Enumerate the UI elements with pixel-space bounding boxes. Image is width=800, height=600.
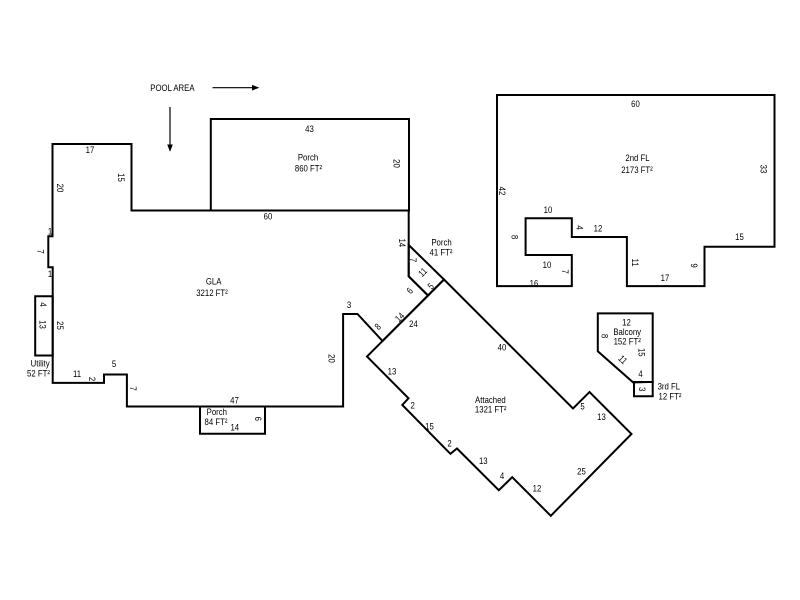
svg-text:8: 8 <box>599 334 610 338</box>
svg-text:24: 24 <box>409 318 418 329</box>
svg-text:4: 4 <box>638 368 642 379</box>
svg-text:13: 13 <box>37 320 48 329</box>
svg-text:POOL AREA: POOL AREA <box>150 82 194 93</box>
svg-text:860 FT²: 860 FT² <box>295 163 322 174</box>
svg-text:25: 25 <box>577 466 586 477</box>
svg-text:9: 9 <box>689 263 700 267</box>
svg-text:60: 60 <box>631 98 640 109</box>
svg-text:7: 7 <box>128 386 139 390</box>
svg-text:84 FT²: 84 FT² <box>205 416 228 427</box>
svg-text:2: 2 <box>447 438 451 449</box>
svg-text:20: 20 <box>326 354 337 363</box>
svg-text:7: 7 <box>408 258 419 262</box>
svg-text:2173 FT²: 2173 FT² <box>621 164 653 175</box>
svg-text:4: 4 <box>500 470 504 481</box>
svg-text:4: 4 <box>38 302 49 306</box>
svg-text:6: 6 <box>253 417 264 421</box>
svg-text:20: 20 <box>55 184 66 193</box>
svg-text:15: 15 <box>636 348 647 357</box>
svg-text:12: 12 <box>622 317 631 328</box>
svg-text:7: 7 <box>35 249 46 253</box>
svg-text:2nd FL: 2nd FL <box>625 152 649 163</box>
svg-text:52 FT²: 52 FT² <box>27 368 50 379</box>
svg-text:47: 47 <box>230 395 239 406</box>
svg-text:17: 17 <box>86 144 95 155</box>
svg-text:14: 14 <box>397 238 408 247</box>
svg-text:12 FT²: 12 FT² <box>659 391 682 402</box>
svg-text:152 FT²: 152 FT² <box>614 336 641 347</box>
svg-text:10: 10 <box>543 259 552 270</box>
svg-text:13: 13 <box>479 455 488 466</box>
svg-text:13: 13 <box>388 366 397 377</box>
svg-text:43: 43 <box>305 123 314 134</box>
svg-text:15: 15 <box>425 421 434 432</box>
svg-text:17: 17 <box>661 272 670 283</box>
svg-text:1: 1 <box>48 226 52 237</box>
svg-text:1321 FT²: 1321 FT² <box>475 404 507 415</box>
svg-text:12: 12 <box>533 483 542 494</box>
svg-text:10: 10 <box>544 204 553 215</box>
svg-text:11: 11 <box>630 258 641 266</box>
svg-text:5: 5 <box>580 401 584 412</box>
svg-text:5: 5 <box>112 358 116 369</box>
svg-text:8: 8 <box>509 235 520 239</box>
svg-text:12: 12 <box>594 223 603 234</box>
svg-text:1: 1 <box>48 268 52 279</box>
svg-text:7: 7 <box>560 269 571 273</box>
svg-text:3: 3 <box>637 387 648 391</box>
svg-text:3: 3 <box>347 299 351 310</box>
svg-text:42: 42 <box>497 187 508 196</box>
svg-text:GLA: GLA <box>206 276 222 287</box>
svg-text:11: 11 <box>73 368 81 379</box>
svg-text:60: 60 <box>264 211 273 222</box>
svg-text:14: 14 <box>230 422 239 433</box>
svg-text:2: 2 <box>87 377 98 381</box>
svg-text:2: 2 <box>410 400 414 411</box>
svg-text:3212 FT²: 3212 FT² <box>196 287 228 298</box>
svg-text:13: 13 <box>597 411 606 422</box>
svg-text:40: 40 <box>498 342 507 353</box>
svg-text:15: 15 <box>116 173 127 182</box>
svg-text:20: 20 <box>391 159 402 168</box>
svg-text:15: 15 <box>735 231 744 242</box>
svg-text:33: 33 <box>758 165 769 174</box>
svg-text:16: 16 <box>530 278 539 289</box>
svg-text:4: 4 <box>575 225 586 229</box>
svg-text:41 FT²: 41 FT² <box>430 247 453 258</box>
svg-text:Porch: Porch <box>298 152 318 163</box>
svg-text:25: 25 <box>55 321 66 330</box>
